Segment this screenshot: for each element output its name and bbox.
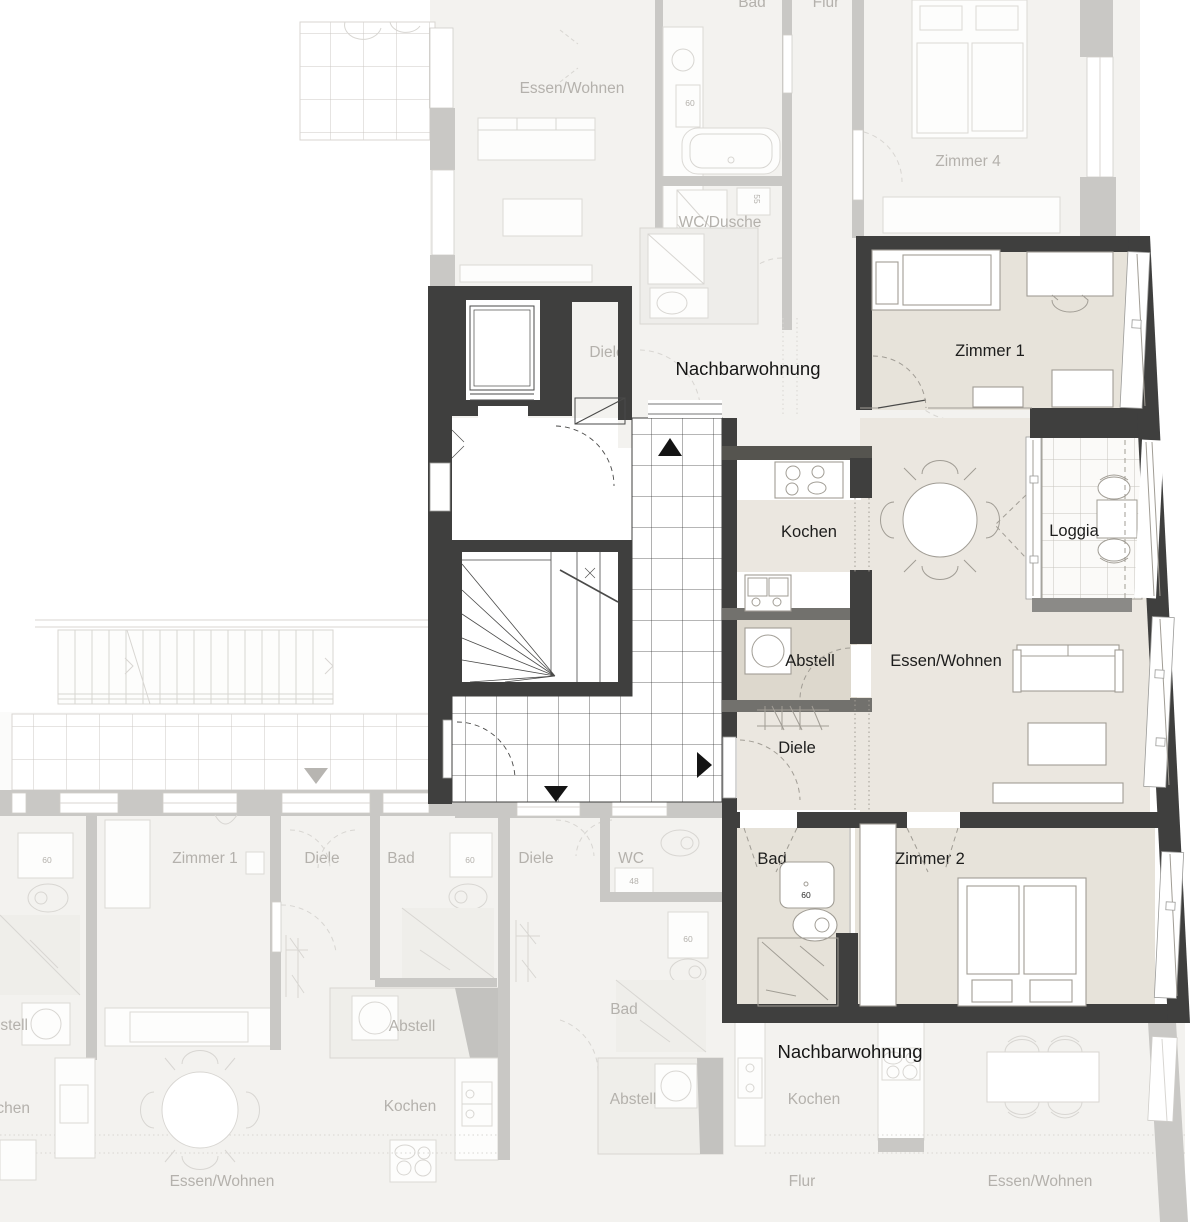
label-dim-60-bm: 60	[683, 934, 693, 944]
floor-plan-svg: Essen/Wohnen 60 Bad Flur 55 WC/Dusche	[0, 0, 1200, 1222]
sofa	[1013, 645, 1123, 692]
label-dim-60-bl2: 60	[465, 855, 475, 865]
label-neighbor-abstell-cut: Abstell	[0, 1017, 28, 1034]
label-dim-60-bad: 60	[801, 890, 811, 900]
label-neighbor-kochen-cut: Kochen	[0, 1100, 30, 1117]
label-dim-48: 48	[629, 876, 639, 886]
label-neighbor-diele-bm: Diele	[518, 850, 553, 867]
label-kochen: Kochen	[781, 523, 837, 541]
sideboard	[993, 783, 1123, 803]
label-neighbor-bad-top: Bad	[738, 0, 766, 11]
label-neighbor-diele-bl: Diele	[304, 850, 339, 867]
access-walkway	[12, 714, 455, 790]
floor-plan: Essen/Wohnen 60 Bad Flur 55 WC/Dusche	[0, 0, 1200, 1222]
label-neighbor-abstell-bm: Abstell	[610, 1091, 657, 1108]
label-neighbor-wc: WC	[618, 850, 644, 867]
elevator	[452, 286, 572, 418]
label-essen-wohnen: Essen/Wohnen	[890, 652, 1002, 670]
label-neighbor-zimmer1: Zimmer 1	[172, 850, 237, 867]
label-loggia: Loggia	[1049, 522, 1099, 540]
label-dim-55: 55	[752, 194, 762, 204]
label-neighbor-essen-wohnen-br: Essen/Wohnen	[988, 1173, 1093, 1190]
label-dim-60-bl: 60	[42, 855, 52, 865]
exterior-stair	[35, 620, 455, 704]
label-nachbarwohnung-bottom: Nachbarwohnung	[777, 1041, 922, 1062]
label-neighbor-bad-bl: Bad	[387, 850, 415, 867]
label-neighbor-bad-bm: Bad	[610, 1001, 638, 1018]
label-neighbor-essen-wohnen-top: Essen/Wohnen	[520, 80, 625, 97]
label-abstell: Abstell	[785, 652, 835, 670]
label-diele: Diele	[778, 739, 816, 757]
label-neighbor-flur-top: Flur	[813, 0, 840, 11]
winding-stair	[450, 540, 632, 696]
label-neighbor-kochen-bl: Kochen	[384, 1098, 437, 1115]
label-neighbor-kochen-br: Kochen	[788, 1091, 841, 1108]
label-nachbarwohnung-top: Nachbarwohnung	[675, 358, 820, 379]
coffee-table	[1028, 723, 1106, 765]
label-zimmer2: Zimmer 2	[895, 850, 965, 868]
label-neighbor-essen-wohnen-bl: Essen/Wohnen	[170, 1173, 275, 1190]
neighbor-balcony-top-left	[300, 22, 435, 140]
core-vestibule	[452, 418, 618, 546]
label-neighbor-flur: Flur	[789, 1173, 816, 1190]
label-dim-60-top: 60	[685, 98, 695, 108]
label-neighbor-zimmer4: Zimmer 4	[935, 153, 1001, 170]
label-zimmer1: Zimmer 1	[955, 342, 1025, 360]
label-neighbor-abstell-bl: Abstell	[389, 1018, 436, 1035]
